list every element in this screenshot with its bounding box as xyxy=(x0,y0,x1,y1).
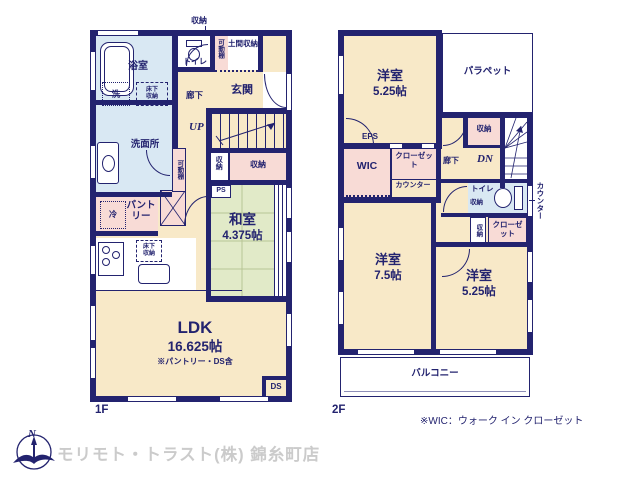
compass-n-label: N xyxy=(27,428,37,440)
footer: N モリモト・トラスト(株) 錦糸町店 ※WIC：ウォーク イン クローゼット xyxy=(0,0,640,480)
watermark: モリモト・トラスト(株) 錦糸町店 xyxy=(57,446,320,465)
wic-note: ※WIC：ウォーク イン クローゼット xyxy=(420,416,583,428)
floor-plan-canvas: 洗 床下収納 冷 床下収納 可動棚 xyxy=(0,0,640,480)
compass-north-icon: N xyxy=(8,422,60,476)
